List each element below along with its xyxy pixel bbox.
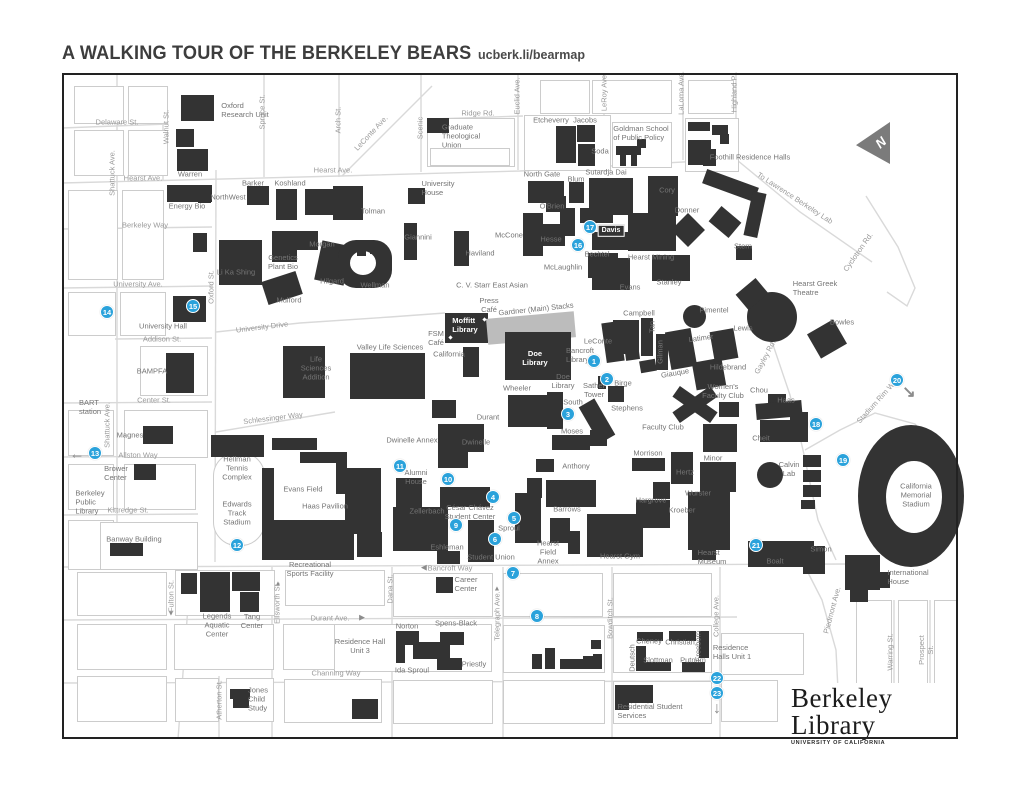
tour-stop-19: 19 xyxy=(836,453,850,467)
tour-stop-21: 21 xyxy=(749,538,763,552)
tour-stops-layer: 1234567891011121314151617181920212223 xyxy=(62,73,958,739)
tour-stop-22: 22 xyxy=(710,671,724,685)
tour-stop-5: 5 xyxy=(507,511,521,525)
tour-stop-6: 6 xyxy=(488,532,502,546)
tour-stop-1: 1 xyxy=(587,354,601,368)
tour-stop-10: 10 xyxy=(441,472,455,486)
tour-stop-8: 8 xyxy=(530,609,544,623)
tour-stop-12: 12 xyxy=(230,538,244,552)
tour-stop-4: 4 xyxy=(486,490,500,504)
tour-stop-15: 15 xyxy=(186,299,200,313)
tour-stop-20: 20 xyxy=(890,373,904,387)
tour-stop-9: 9 xyxy=(449,518,463,532)
tour-stop-17: 17 xyxy=(583,220,597,234)
campus-map: Delaware St.Walnut St.Hearst Ave.Hearst … xyxy=(62,73,958,739)
tour-stop-11: 11 xyxy=(393,459,407,473)
tour-stop-3: 3 xyxy=(561,407,575,421)
logo-name: Berkeley Library xyxy=(791,685,952,739)
north-label: N xyxy=(872,134,889,151)
library-logo: Berkeley Library UNIVERSITY OF CALIFORNI… xyxy=(785,683,958,750)
tour-stop-14: 14 xyxy=(100,305,114,319)
tour-stop-13: 13 xyxy=(88,446,102,460)
tour-stop-18: 18 xyxy=(809,417,823,431)
page-title: A WALKING TOUR OF THE BERKELEY BEARS xyxy=(62,42,471,65)
map-url: ucberk.li/bearmap xyxy=(478,48,585,62)
tour-stop-2: 2 xyxy=(600,372,614,386)
tour-stop-16: 16 xyxy=(571,238,585,252)
tour-stop-23: 23 xyxy=(710,686,724,700)
logo-tagline: UNIVERSITY OF CALIFORNIA xyxy=(791,740,952,746)
tour-stop-7: 7 xyxy=(506,566,520,580)
